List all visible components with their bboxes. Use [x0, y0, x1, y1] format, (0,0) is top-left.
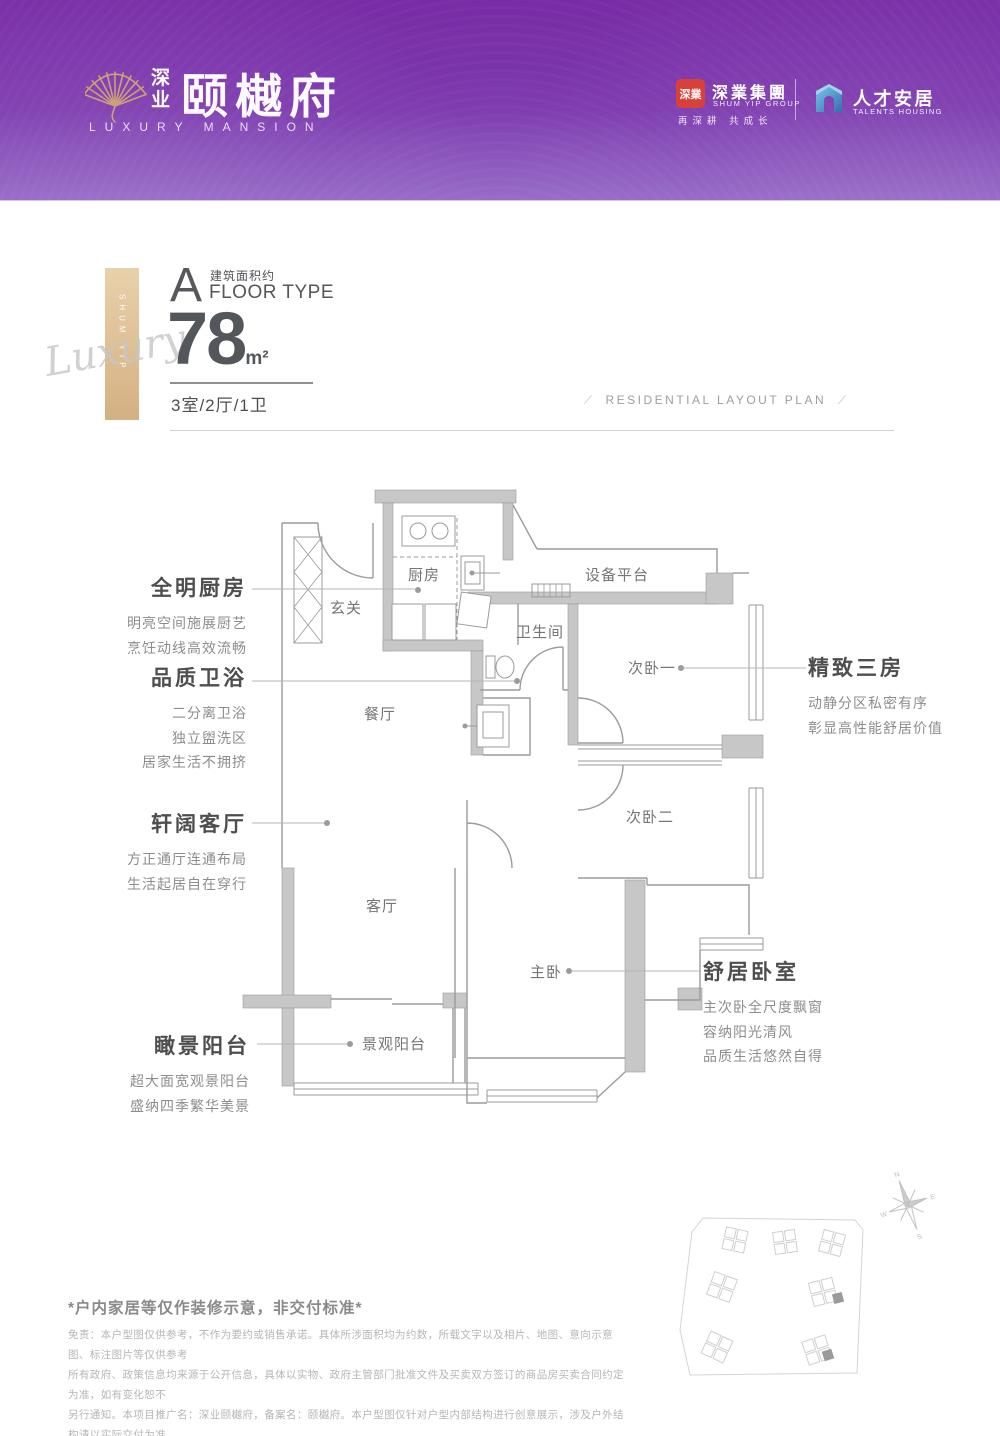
decor-note: *户内家居等仅作装修示意，非交付标准* [68, 1296, 363, 1318]
callout-balcony-body: 超大面宽观景阳台 盛纳四季繁华美景 [40, 1069, 250, 1118]
logo-divider [795, 79, 796, 120]
disclaimer-text: 免责：本户型图仅供参考，不作为要约或销售承诺。具体所涉面积均为约数，所载文字以及… [68, 1326, 628, 1436]
master-door-arc [467, 823, 512, 868]
entry-door-arc [318, 523, 373, 578]
disclaimer-line: 所有政府、政策信息均来源于公开信息，具体以实物、政府主管部门批准文件及买卖双方签… [68, 1366, 628, 1406]
callout-living-body: 方正通厅连通布局 生活起居自在穿行 [47, 847, 247, 896]
toilet-bowl [496, 656, 514, 678]
callout-line: 容纳阳光清风 [703, 1020, 883, 1045]
callout-living: 轩阔客厅 方正通厅连通布局 生活起居自在穿行 [47, 808, 247, 896]
room-label-platform: 设备平台 [585, 567, 649, 584]
plan-en-text: RESIDENTIAL LAYOUT PLAN [605, 393, 826, 407]
slash-right: / [836, 393, 849, 407]
callout-line: 超大面宽观景阳台 [40, 1069, 250, 1094]
callout-bedrooms-body: 动静分区私密有序 彰显高性能舒居价值 [808, 691, 988, 740]
callout-line: 烹饪动线高效流畅 [47, 636, 247, 661]
callout-balcony: 瞰景阳台 超大面宽观景阳台 盛纳四季繁华美景 [40, 1030, 250, 1118]
shaft-hatch [294, 537, 322, 643]
callout-line: 居家生活不拥挤 [47, 750, 247, 775]
area-number: 78 [167, 297, 245, 380]
shumyip-seal-icon: 深業 [676, 79, 705, 108]
bed1-door-arc [578, 698, 623, 743]
callout-line: 品质生活悠然自得 [703, 1044, 883, 1069]
bath-door-arc [520, 647, 563, 690]
slash-left: / [582, 393, 595, 407]
area-value: 78m² [167, 302, 269, 376]
callout-line: 方正通厅连通布局 [47, 847, 247, 872]
compass-s: S [916, 1233, 923, 1241]
talents-name-en: TALENTS HOUSING [853, 107, 943, 116]
shumyip-seal-text: 深業 [680, 86, 702, 102]
counter-1 [392, 604, 423, 640]
callout-master-title: 舒居卧室 [703, 956, 883, 986]
callout-kitchen: 全明厨房 明亮空间施展厨艺 烹饪动线高效流畅 [47, 572, 247, 660]
room-count-label: 3室/2厅/1卫 [171, 391, 268, 416]
room-label-kitchen: 厨房 [408, 567, 440, 584]
callout-line: 主次卧全尺度飘窗 [703, 995, 883, 1020]
callout-line: 二分离卫浴 [47, 701, 247, 726]
disclaimer-line: 免责：本户型图仅供参考，不作为要约或销售承诺。具体所涉面积均为约数，所载文字以及… [68, 1326, 628, 1366]
brand-tagline: LUXURY MANSION [89, 120, 323, 134]
callout-living-title: 轩阔客厅 [47, 808, 247, 838]
poster-page: 深业 颐樾府 LUXURY MANSION 深業 深業集團 SHUM YIP G… [0, 0, 1000, 1436]
section-divider-line [170, 430, 894, 431]
room-labels: 玄关 厨房 餐厅 设备平台 卫生间 次卧一 次卧二 客厅 主卧 景观阳台 [330, 567, 676, 1053]
shumyip-slogan: 再深耕 共成长 [678, 113, 773, 127]
brand-prefix: 深业 [151, 68, 173, 112]
callout-line: 彰显高性能舒居价值 [808, 716, 988, 741]
header-banner: 深业 颐樾府 LUXURY MANSION 深業 深業集團 SHUM YIP G… [0, 0, 1000, 201]
callout-bath-title: 品质卫浴 [47, 662, 247, 692]
room-label-entry: 玄关 [330, 600, 362, 617]
compass-icon: N E S W [868, 1162, 947, 1250]
room-label-master: 主卧 [530, 964, 562, 981]
area-unit: m² [245, 348, 268, 369]
callout-balcony-title: 瞰景阳台 [40, 1030, 250, 1060]
callout-line: 明亮空间施展厨艺 [47, 611, 247, 636]
area-underline [170, 382, 313, 384]
walls [243, 490, 763, 1086]
callout-line: 独立盥洗区 [47, 726, 247, 751]
room-label-balcony: 景观阳台 [362, 1036, 426, 1053]
counter-2 [425, 604, 456, 640]
callout-master-body: 主次卧全尺度飘窗 容纳阳光清风 品质生活悠然自得 [703, 995, 883, 1069]
callout-kitchen-body: 明亮空间施展厨艺 烹饪动线高效流畅 [47, 611, 247, 660]
callout-kitchen-title: 全明厨房 [47, 572, 247, 602]
appliance [457, 592, 491, 628]
room-label-living: 客厅 [366, 898, 398, 915]
washbasin [477, 705, 509, 747]
brand-name: 颐樾府 [181, 58, 343, 127]
talents-housing-icon [811, 83, 847, 115]
callout-bath-body: 二分离卫浴 独立盥洗区 居家生活不拥挤 [47, 701, 247, 775]
compass-e: E [930, 1193, 937, 1201]
disclaimer-line: 另行通知。本项目推广名：深业颐樾府，备案名：颐樾府。本户型图仅针对户型内部结构进… [68, 1406, 628, 1436]
residential-layout-plan-label: /RESIDENTIAL LAYOUT PLAN/ [572, 393, 860, 407]
ginkgo-fan-icon [85, 60, 147, 124]
bed2-door-arc [578, 765, 623, 810]
shumyip-name-en: SHUM YIP GROUP [713, 99, 801, 108]
room-label-bath: 卫生间 [516, 624, 564, 641]
callout-line: 盛纳四季繁华美景 [40, 1094, 250, 1119]
compass-n: N [894, 1171, 901, 1179]
callout-bedrooms: 精致三房 动静分区私密有序 彰显高性能舒居价值 [808, 652, 988, 740]
site-map: N E S W [650, 1150, 980, 1420]
callout-bath: 品质卫浴 二分离卫浴 独立盥洗区 居家生活不拥挤 [47, 662, 247, 775]
fixtures [392, 516, 514, 747]
compass-w: W [880, 1211, 889, 1220]
callout-master: 舒居卧室 主次卧全尺度飘窗 容纳阳光清风 品质生活悠然自得 [703, 956, 883, 1069]
room-label-bed1: 次卧一 [628, 660, 676, 677]
toilet-tank [486, 656, 495, 678]
site-buildings [701, 1227, 845, 1365]
room-label-bed2: 次卧二 [626, 809, 674, 826]
callout-line: 动静分区私密有序 [808, 691, 988, 716]
callout-bedrooms-title: 精致三房 [808, 652, 988, 682]
room-label-dining: 餐厅 [364, 706, 396, 723]
callout-line: 生活起居自在穿行 [47, 872, 247, 897]
